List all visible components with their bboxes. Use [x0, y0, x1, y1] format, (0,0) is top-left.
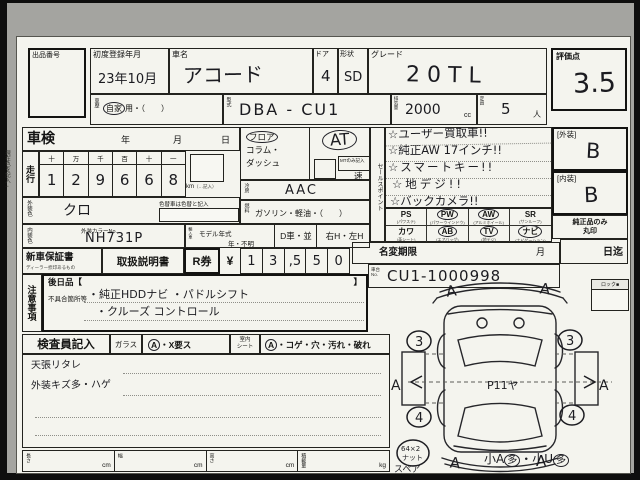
exterior-rating-label: [外装] — [557, 131, 576, 139]
equipment-code: カワ — [398, 226, 414, 237]
mileage-digit: 6 — [137, 165, 160, 196]
exterior-color-value: クロ — [63, 204, 91, 218]
interior-rating-label: [内装] — [557, 175, 576, 183]
auction-sheet-scan: 現在色を記入→ 出品番号 初度登録年月 23年10月 車名 アコード ドア 4 … — [0, 0, 640, 480]
glass-marks-cell: A・X要ス — [142, 334, 230, 354]
equipment-code: AB — [438, 226, 458, 237]
shift-cell: フロア コラム・ ダッシュ AT MTのみ記入 速 — [240, 127, 370, 180]
chassis-label-line2: No. — [371, 272, 380, 277]
model-code-value: DBA - CU1 — [239, 102, 340, 118]
first-registration-label: 初度登録年月 — [93, 51, 141, 60]
later-items-label: 後日品【 — [48, 278, 82, 287]
door-value: 4 — [321, 69, 331, 84]
equipment-code: PW — [437, 209, 458, 220]
rule-line — [123, 395, 381, 396]
seat-mark-rest: ・コゲ・穴・汚れ・破れ — [277, 340, 371, 350]
interior-rating-box: [内装] B — [552, 171, 628, 215]
mileage-header: 百 — [113, 152, 136, 165]
height-unit: cm — [286, 462, 295, 469]
color-change-note: 色替車は色替と記入 — [159, 200, 209, 208]
until-date-label: 日迄 — [603, 247, 623, 258]
displacement-value: 2000 — [405, 103, 441, 117]
ac-label: 冷房 — [243, 183, 249, 193]
roof-damage-note: P11ヤ — [487, 379, 519, 392]
shaken-month-label: 月 — [173, 136, 182, 146]
auction-number-box: 出品番号 — [28, 48, 86, 118]
height-label: 高さ — [209, 453, 216, 463]
gear-count-box — [314, 159, 336, 179]
damage-summary-part: 小A — [484, 452, 504, 466]
mileage-unit: km — [186, 184, 194, 190]
inspector-note: 天張リタレ — [31, 361, 81, 372]
rear-wheel-mark-right: 4 — [568, 409, 576, 424]
model-year-row: 輸入車 モデル年式 年・不明 D車・並 右H・左H — [185, 224, 370, 248]
defect-line: ・クルーズ コントロール — [96, 306, 220, 317]
rule-line — [123, 373, 381, 374]
lock-status-box: ロック■ — [591, 279, 629, 311]
inspector-note: 外装キズ多・ハゲ — [31, 380, 111, 391]
rule-line — [84, 302, 364, 303]
mt-note-box: MTのみ記入 — [338, 156, 370, 171]
capacity-label: 定員 — [479, 96, 484, 105]
displacement-label: 排気量 — [393, 96, 398, 110]
equipment-code: SR — [525, 210, 536, 219]
defects-label: 不具合箇所等 — [48, 293, 87, 303]
shaken-year-label: 年 — [121, 136, 130, 146]
ac-value: AAC — [285, 184, 318, 197]
length-unit: cm — [102, 462, 111, 469]
lock-label: ロック■ — [592, 280, 628, 290]
model-year-label: モデル年式 — [199, 228, 232, 238]
rear-wheel-mark-left: 4 — [415, 411, 423, 426]
front-wheel-mark-right: 3 — [566, 334, 574, 349]
inspector-label-cell: 検査員記入 — [22, 334, 110, 354]
first-registration-value: 23年10月 — [98, 73, 157, 86]
front-wheel-mark-left: 3 — [415, 335, 423, 350]
exterior-rating-box: [外装] B — [552, 127, 628, 171]
auction-number-label: 出品番号 — [32, 52, 60, 60]
displacement-unit: cc — [464, 112, 471, 120]
later-items-close: 】 — [353, 278, 362, 287]
capacity-cell: 定員 5 人 — [476, 93, 547, 125]
score-label: 評価点 — [556, 53, 580, 62]
shape-label: 形状 — [340, 51, 354, 59]
mileage-digit: 6 — [113, 165, 136, 196]
mileage-digit: 8 — [162, 165, 185, 196]
grade-label: グレード — [371, 51, 403, 60]
warranty-cell: 新車保証書 ディーラー捺印あるもの — [22, 248, 102, 274]
history-cell: 車歴 自家用・（ ） — [90, 93, 224, 125]
damage-summary-part: ・小U — [520, 452, 553, 466]
name-change-month-label: 月 — [536, 248, 545, 258]
mileage-unit-note: km（…記入） — [186, 184, 240, 190]
equipment-name: (パワーウインドウ) — [430, 220, 465, 226]
car-name-cell: 車名 アコード — [168, 48, 314, 95]
equipment-code: AW — [478, 209, 499, 220]
fee-digit: 5 — [306, 249, 328, 273]
capacity-unit: 人 — [533, 111, 541, 120]
exterior-color-row: 外装色 クロ 色替車は色替と記入 — [22, 197, 240, 224]
notes-box: 後日品【 】 不具合箇所等 ・純正HDDナビ ・パドルシフト ・クルーズ コント… — [42, 274, 368, 332]
wheel-note-line2: ナット — [402, 454, 423, 462]
seat-label-line1: 室内 — [239, 337, 250, 344]
equipment-code: TV — [480, 226, 498, 237]
fuel-label: 燃料 — [243, 203, 249, 213]
score-value: 3.5 — [573, 69, 617, 97]
shape-cell: 形状 SD — [337, 48, 369, 95]
width-unit: cm — [194, 462, 203, 469]
mileage-label: 走行 — [22, 151, 39, 197]
shift-floor-option: フロア — [246, 131, 278, 143]
shaken-row: 車検 年 月 日 — [22, 127, 240, 151]
model-code-label: 型式 — [225, 97, 231, 107]
history-rest: 用・（ ） — [125, 104, 169, 113]
shift-column-option: コラム・ — [246, 144, 280, 157]
door-label: ドア — [315, 51, 329, 59]
equipment-name: (サンルーフ) — [519, 219, 541, 225]
until-date-cell: 日迄 — [560, 239, 628, 264]
fee-digit: 3 — [263, 249, 285, 273]
glass-mark-rest: ・X要ス — [160, 340, 191, 350]
manual-cell: 取扱説明書 — [102, 248, 184, 274]
notes-label: 注意事項 — [22, 274, 42, 332]
history-circled-value: 自家 — [103, 102, 125, 115]
color-change-box — [159, 208, 239, 222]
damage-mark-front-left: A — [445, 281, 458, 300]
seat-label-line2: シート — [237, 344, 254, 351]
inspector-notes-area: 天張リタレ 外装キズ多・ハゲ — [22, 354, 390, 448]
length-label: 長さ — [25, 453, 32, 463]
glass-label-cell: ガラス — [110, 334, 142, 354]
exterior-rating-value: B — [585, 141, 601, 163]
ac-row: 冷房 AAC — [240, 180, 370, 200]
mileage-grid: 十 1 万 2 千 9 百 6 十 6 一 8 — [39, 151, 186, 197]
mileage-header: 千 — [89, 152, 112, 165]
history-label: 車歴 — [93, 98, 99, 108]
shaken-day-label: 日 — [221, 136, 230, 146]
fuel-value: ガソリン・軽油・（ ） — [255, 208, 347, 219]
margin-current-color-note: 現在色を記入→ — [3, 150, 11, 230]
score-box: 評価点 3.5 — [551, 48, 627, 111]
recycle-ticket-cell: R券 — [184, 248, 220, 274]
recycle-fee-digits: 1 3 ,5 5 0 — [240, 248, 350, 274]
rule-line — [35, 435, 381, 436]
rule-line — [35, 417, 381, 418]
model-code-cell: 型式 DBA - CU1 — [222, 93, 392, 125]
name-change-label: 名変期限 — [379, 248, 417, 258]
interior-color-row: 内装色 外装カラーNo. NH731P — [22, 224, 185, 248]
grade-cell: グレード 20TL — [367, 48, 547, 95]
seat-marks-cell: A・コゲ・穴・汚れ・破れ — [260, 334, 390, 354]
shift-dash-option: ダッシュ — [246, 157, 280, 170]
equipment-name: (パワステ) — [397, 219, 416, 225]
genuine-parts-note-line1: 純正品のみ — [573, 218, 608, 227]
sales-line: ☆ユーザー買取車!! — [386, 127, 551, 147]
color-no-value: NH731P — [85, 232, 143, 245]
transmission-value: AT — [321, 129, 358, 151]
damage-mark-side-right: A — [599, 378, 609, 394]
seat-mark-a: A — [265, 339, 277, 351]
genuine-parts-note: 純正品のみ 丸印 — [552, 215, 628, 239]
shaken-label: 車検 — [27, 131, 55, 146]
equipment-code: PS — [401, 210, 412, 219]
load-unit: kg — [379, 462, 386, 469]
dealer-car-option: D車・並 — [274, 225, 317, 247]
glass-mark-a: A — [148, 339, 160, 351]
fuel-row: 燃料 ガソリン・軽油・（ ） — [240, 200, 370, 224]
grade-value: 20TL — [406, 64, 488, 87]
fee-digit: 1 — [241, 249, 263, 273]
mileage-digit: 9 — [89, 165, 112, 196]
equipment-grid: PS (パワステ) PW (パワーウインドウ) AW (アルミホイール) SR … — [385, 208, 552, 242]
warranty-sub-label: ディーラー捺印あるもの — [26, 265, 75, 271]
damage-summary-count: 多 — [553, 454, 569, 467]
import-label: 輸入車 — [188, 227, 192, 239]
shape-value: SD — [344, 71, 362, 84]
equipment-name: (アルミホイール) — [473, 220, 504, 226]
capacity-value: 5 — [501, 102, 511, 117]
mileage-stamp-box — [190, 154, 224, 182]
load-label: 積載量 — [300, 453, 307, 468]
damage-mark-side-left: A — [391, 378, 401, 394]
rule-line — [84, 320, 364, 321]
interior-rating-value: B — [584, 185, 599, 206]
name-change-row: 名変期限 月 — [352, 242, 560, 264]
mileage-digit: 1 — [40, 165, 63, 196]
damage-mark-rear-left: A — [449, 454, 462, 473]
yen-sign: ¥ — [220, 248, 240, 274]
mileage-header: 十 — [137, 152, 160, 165]
sales-points-label: セールスポイント — [370, 127, 385, 242]
spare-tire-label: スペア — [394, 465, 420, 474]
damage-summary-count: 多 — [504, 454, 520, 467]
first-registration-cell: 初度登録年月 23年10月 — [90, 48, 170, 95]
damage-mark-front-right: A — [539, 279, 552, 298]
mileage-note: （…記入） — [194, 184, 217, 189]
damage-circles — [397, 330, 595, 466]
mileage-digit: 2 — [64, 165, 87, 196]
dimensions-strip: 長さ cm 幅 cm 高さ cm 積載量 kg — [22, 450, 390, 472]
damage-summary: 小A多・小U多 — [484, 453, 569, 466]
fee-digit: ,5 — [285, 249, 307, 273]
defect-line: ・純正HDDナビ ・パドルシフト — [88, 289, 249, 300]
fee-digit: 0 — [328, 249, 349, 273]
mileage-header: 十 — [40, 152, 63, 165]
car-outline — [402, 283, 598, 472]
sales-points-area: ☆ユーザー買取車!! ☆純正AW 17インチ!! ☆スマートキー!! ☆地デジ!… — [385, 127, 552, 208]
genuine-parts-note-line2: 丸印 — [583, 227, 597, 236]
seat-label-cell: 室内 シート — [230, 334, 260, 354]
car-name-value: アコード — [183, 64, 263, 85]
displacement-cell: 排気量 2000 cc — [390, 93, 478, 125]
exterior-color-label: 外装色 — [26, 200, 32, 217]
width-label: 幅 — [117, 453, 124, 458]
equipment-code: ナビ — [518, 225, 542, 238]
wheel-note-line1: 64×2 — [401, 445, 420, 453]
model-year-value: 年・不明 — [228, 238, 254, 248]
mileage-header: 一 — [162, 152, 185, 165]
interior-color-label: 内装色 — [26, 227, 32, 244]
mileage-header: 万 — [64, 152, 87, 165]
door-cell: ドア 4 — [312, 48, 339, 95]
warranty-label: 新車保証書 — [26, 253, 74, 263]
car-name-label: 車名 — [172, 51, 188, 60]
